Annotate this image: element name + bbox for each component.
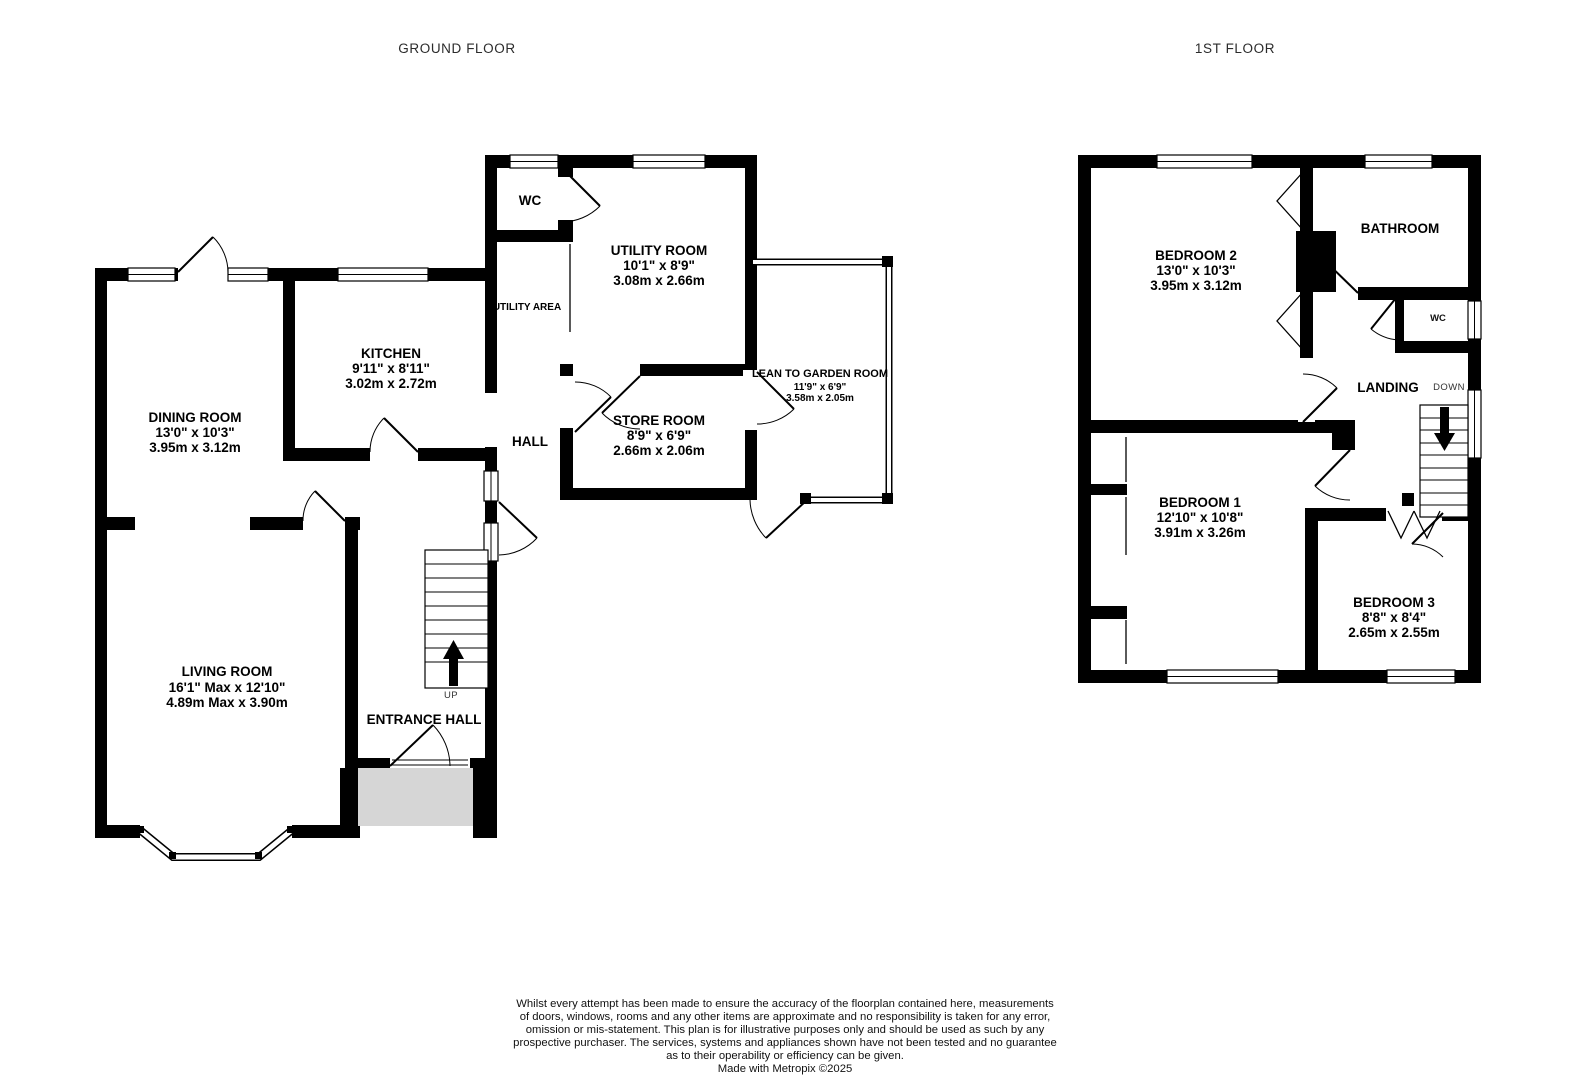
room-label: LEAN TO GARDEN ROOM	[752, 368, 888, 380]
room-size-imperial: 11'9" x 6'9"	[794, 382, 847, 393]
first-floor-details	[1126, 172, 1440, 664]
room-label: WC	[519, 193, 542, 208]
ground-floor-plan: GROUND FLOOR WC UTILITY ROOM 10'1" x 8'9…	[95, 41, 893, 859]
room-size-imperial: 8'9" x 6'9"	[627, 428, 691, 443]
room-size-metric: 3.95m x 3.12m	[1150, 278, 1242, 293]
room-size-imperial: 16'1" Max x 12'10"	[169, 680, 286, 695]
room-label: BEDROOM 1	[1159, 495, 1241, 510]
room-wc-first: WC	[1430, 313, 1446, 324]
room-utility-area: UTILITY AREA	[493, 302, 561, 313]
room-label: LIVING ROOM	[182, 664, 273, 679]
stairs-down-label: DOWN	[1433, 382, 1465, 393]
room-size-metric: 3.95m x 3.12m	[149, 440, 241, 455]
room-size-imperial: 8'8" x 8'4"	[1362, 610, 1426, 625]
disclaimer-line: as to their operability or efficiency ca…	[666, 1050, 904, 1062]
room-bedroom-1: BEDROOM 1 12'10" x 10'8" 3.91m x 3.26m	[1154, 495, 1246, 540]
disclaimer-line: Whilst every attempt has been made to en…	[516, 998, 1054, 1010]
room-size-metric: 3.58m x 2.05m	[786, 393, 854, 404]
floorplan-svg: GROUND FLOOR WC UTILITY ROOM 10'1" x 8'9…	[0, 0, 1585, 1080]
room-size-imperial: 12'10" x 10'8"	[1157, 510, 1244, 525]
room-label: BEDROOM 2	[1155, 248, 1237, 263]
room-size-metric: 3.91m x 3.26m	[1154, 525, 1246, 540]
disclaimer-line: of doors, windows, rooms and any other i…	[520, 1011, 1051, 1023]
stairs-up-label: UP	[444, 690, 458, 701]
wardrobe-door-chevron	[1277, 172, 1303, 230]
room-size-imperial: 10'1" x 8'9"	[623, 258, 695, 273]
room-size-metric: 3.02m x 2.72m	[345, 376, 437, 391]
room-label: LANDING	[1357, 380, 1419, 395]
room-label: ENTRANCE HALL	[367, 712, 482, 727]
room-kitchen: KITCHEN 9'11" x 8'11" 3.02m x 2.72m	[345, 346, 437, 391]
room-entrance-hall: ENTRANCE HALL	[367, 712, 482, 727]
room-size-metric: 3.08m x 2.66m	[613, 273, 705, 288]
room-size-metric: 2.66m x 2.06m	[613, 443, 705, 458]
room-size-imperial: 9'11" x 8'11"	[352, 361, 430, 376]
room-label: WC	[1430, 313, 1446, 324]
room-label: STORE ROOM	[613, 413, 705, 428]
room-label: UTILITY ROOM	[611, 243, 708, 258]
entrance-porch	[358, 768, 473, 826]
room-size-imperial: 13'0" x 10'3"	[155, 425, 234, 440]
room-wc-ground: WC	[519, 193, 542, 208]
room-label: DINING ROOM	[149, 410, 242, 425]
disclaimer-credit: Made with Metropix ©2025	[718, 1063, 853, 1075]
room-store-room: STORE ROOM 8'9" x 6'9" 2.66m x 2.06m	[613, 413, 705, 458]
room-label: KITCHEN	[361, 346, 421, 361]
wardrobe-door-chevron	[1277, 292, 1303, 350]
room-landing: LANDING	[1357, 380, 1419, 395]
disclaimer-line: omission or mis-statement. This plan is …	[526, 1024, 1045, 1036]
room-size-metric: 4.89m Max x 3.90m	[166, 695, 288, 710]
disclaimer: Whilst every attempt has been made to en…	[513, 998, 1057, 1075]
up-arrow-icon	[449, 656, 458, 686]
ground-floor-title: GROUND FLOOR	[398, 41, 515, 56]
room-label: UTILITY AREA	[493, 302, 561, 313]
room-bathroom: BATHROOM	[1361, 221, 1440, 236]
stairs-down	[1420, 405, 1468, 517]
room-label: BATHROOM	[1361, 221, 1440, 236]
first-floor-plan: 1ST FLOOR BEDROOM 2 13'0" x 10'3" 3.95m …	[1078, 41, 1481, 683]
room-hall: HALL	[512, 434, 548, 449]
room-bedroom-2: BEDROOM 2 13'0" x 10'3" 3.95m x 3.12m	[1150, 248, 1242, 293]
stairs-up	[425, 550, 488, 688]
room-dining-room: DINING ROOM 13'0" x 10'3" 3.95m x 3.12m	[149, 410, 242, 455]
room-label: HALL	[512, 434, 548, 449]
first-floor-title: 1ST FLOOR	[1195, 41, 1275, 56]
room-living-room: LIVING ROOM 16'1" Max x 12'10" 4.89m Max…	[166, 664, 288, 710]
room-bedroom-3: BEDROOM 3 8'8" x 8'4" 2.65m x 2.55m	[1348, 595, 1440, 640]
room-size-metric: 2.65m x 2.55m	[1348, 625, 1440, 640]
lean-to-walls	[753, 256, 893, 504]
room-size-imperial: 13'0" x 10'3"	[1156, 263, 1235, 278]
disclaimer-line: prospective purchaser. The services, sys…	[513, 1037, 1057, 1049]
floorplan-page: GROUND FLOOR WC UTILITY ROOM 10'1" x 8'9…	[0, 0, 1585, 1080]
room-label: BEDROOM 3	[1353, 595, 1435, 610]
down-arrow-icon	[1440, 407, 1449, 435]
room-utility-room: UTILITY ROOM 10'1" x 8'9" 3.08m x 2.66m	[611, 243, 708, 288]
